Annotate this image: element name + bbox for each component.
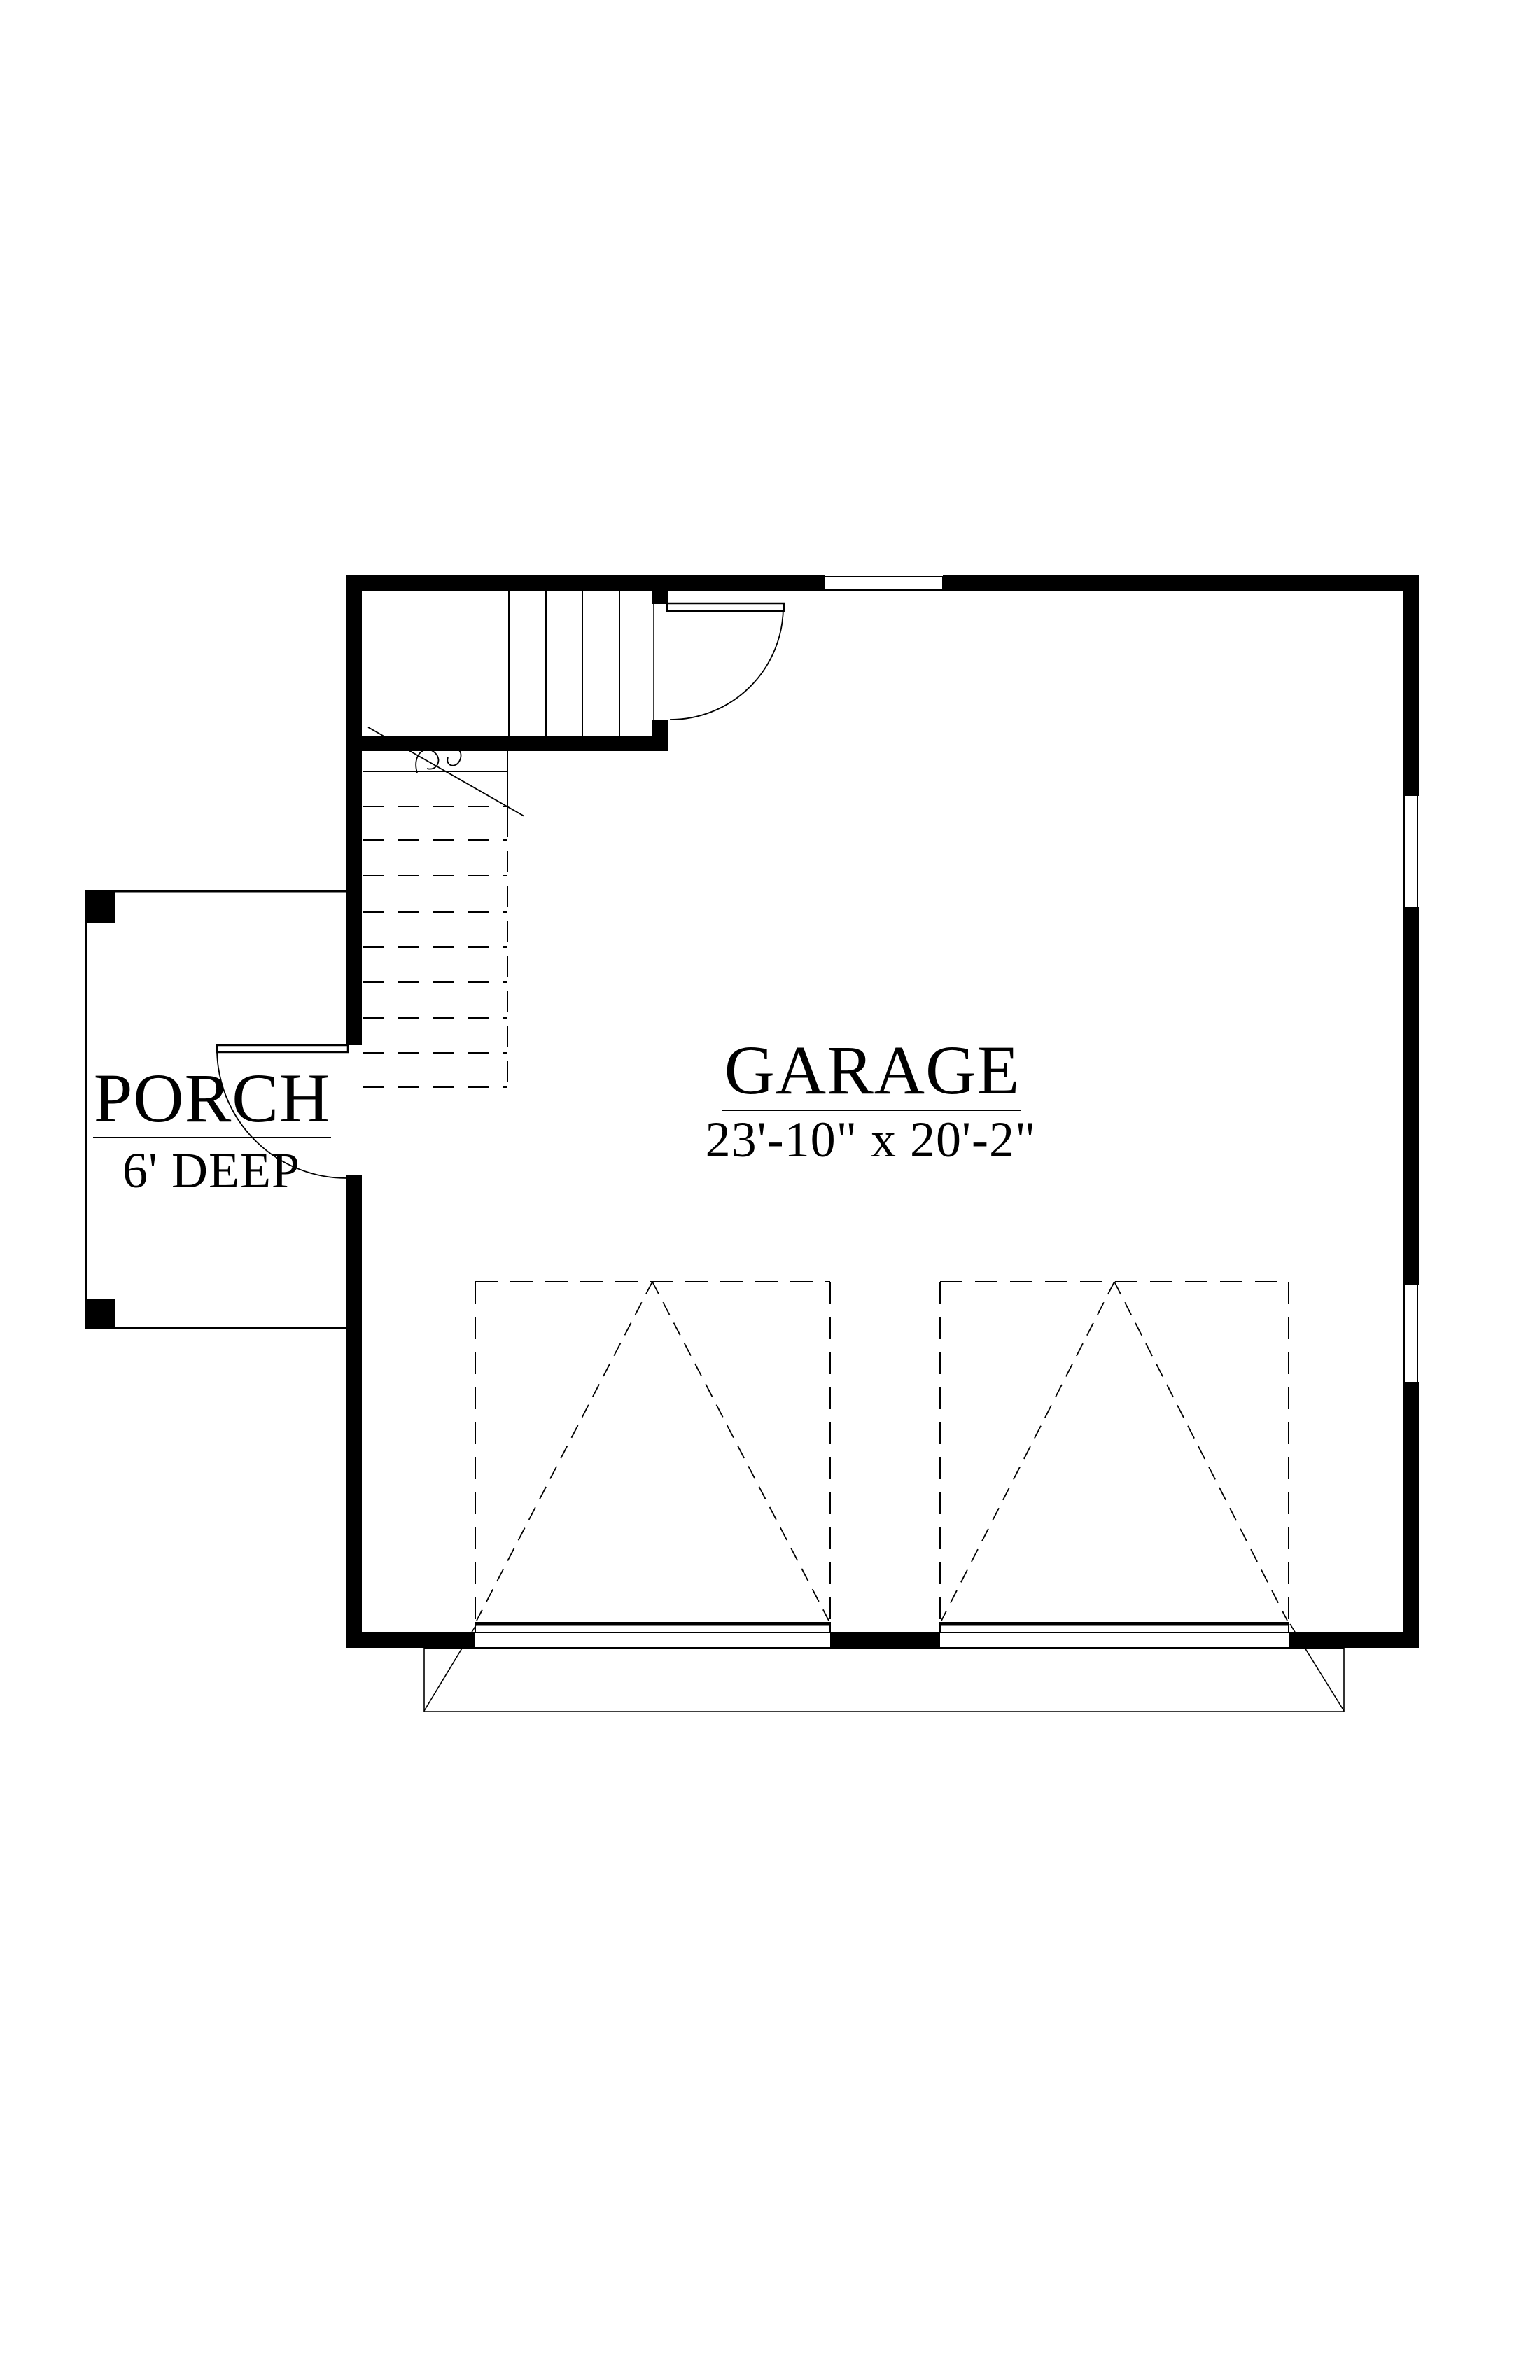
wall-right-lower-segment	[1403, 1383, 1419, 1648]
stair-door-swing-arc	[670, 607, 783, 720]
right-wall-window-lower	[1403, 1284, 1419, 1383]
stair-treads-lower-run	[363, 751, 507, 1091]
floor-plan-sheet: GARAGE 23'-10" x 20'-2" PORCH 6' DEEP	[0, 0, 1540, 2380]
garage-door-left	[475, 1282, 830, 1632]
stair-door-leaf	[667, 603, 784, 611]
labels: GARAGE 23'-10" x 20'-2" PORCH 6' DEEP	[93, 1031, 1036, 1198]
wall-left-upper-segment	[346, 575, 362, 1045]
wall-bottom-center-pier	[830, 1632, 940, 1648]
porch-depth-label: 6' DEEP	[122, 1142, 300, 1198]
garage-room-label: GARAGE	[724, 1031, 1021, 1109]
wall-right-middle-segment	[1403, 909, 1419, 1284]
porch-post-top	[85, 891, 115, 923]
wall-top-left-segment	[346, 575, 825, 591]
top-wall-window	[825, 576, 943, 591]
stairwell-bottom-wall	[346, 736, 668, 751]
garage-door-right	[940, 1282, 1289, 1632]
garage-door-left-dashed-track	[475, 1282, 830, 1620]
garage-dimensions-label: 23'-10" x 20'-2"	[706, 1112, 1037, 1168]
stair-risers-upper-run	[509, 591, 619, 736]
windows	[825, 576, 1419, 1383]
porch-room-label: PORCH	[94, 1059, 330, 1137]
staircase	[363, 591, 654, 1091]
garage-door-right-dashed-track	[940, 1282, 1289, 1620]
wall-left-lower-segment	[346, 1175, 362, 1648]
floor-plan: GARAGE 23'-10" x 20'-2" PORCH 6' DEEP	[0, 0, 1540, 2380]
wall-bottom-right-pier	[1289, 1632, 1419, 1648]
wall-bottom-left-pier	[346, 1632, 475, 1648]
porch-post-bottom	[85, 1298, 115, 1329]
wall-top-right-segment	[943, 575, 1419, 591]
stair-door	[667, 603, 784, 720]
stairwell-door-top-stub	[652, 591, 668, 604]
porch-door-leaf	[217, 1045, 348, 1052]
break-squiggle	[416, 748, 461, 773]
wall-right-upper-segment	[1403, 575, 1419, 794]
right-wall-window-upper	[1403, 794, 1419, 909]
stairwell-door-bottom-stub	[652, 720, 668, 736]
